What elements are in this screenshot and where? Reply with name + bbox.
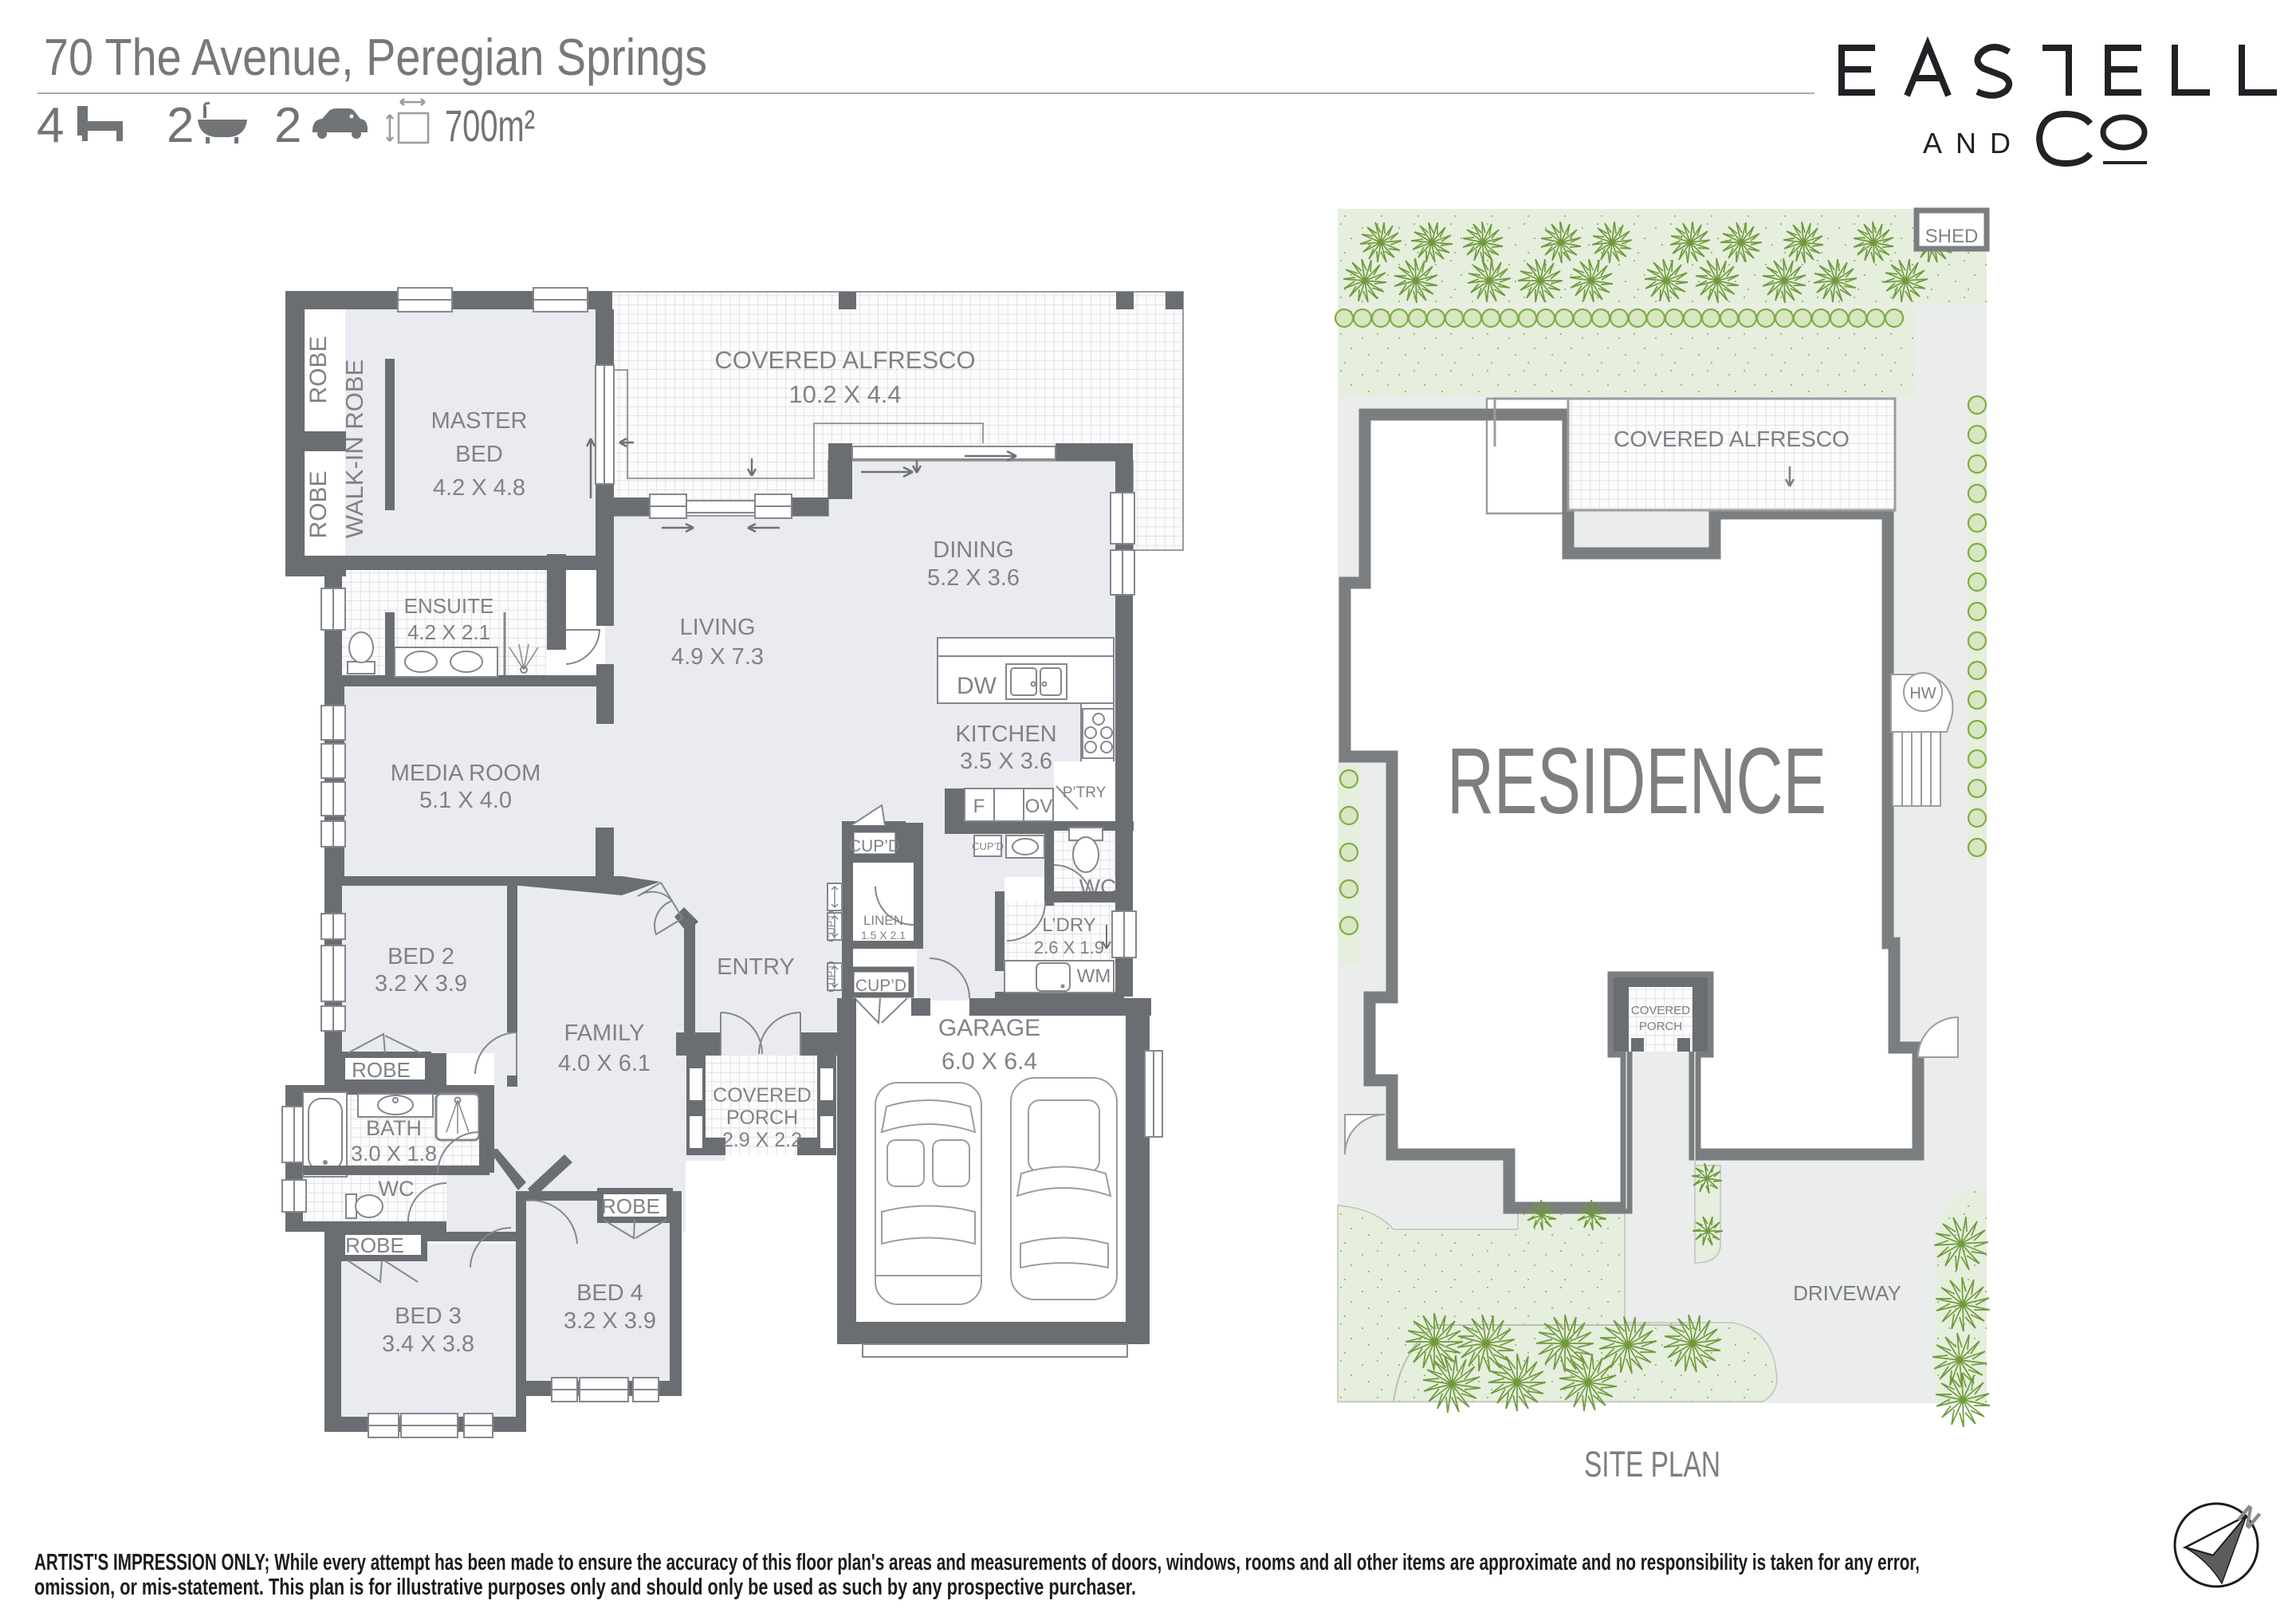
svg-text:4.0 X 6.1: 4.0 X 6.1 [558, 1051, 651, 1076]
svg-text:2: 2 [167, 98, 194, 153]
svg-text:5.2 X 3.6: 5.2 X 3.6 [927, 565, 1020, 591]
svg-text:4.9 X 7.3: 4.9 X 7.3 [671, 644, 764, 670]
svg-text:COVERED ALFRESCO: COVERED ALFRESCO [714, 346, 975, 374]
svg-text:5.1 X 4.0: 5.1 X 4.0 [419, 788, 512, 813]
svg-text:CUP’D: CUP’D [855, 977, 906, 995]
svg-text:CUP’D: CUP’D [825, 961, 837, 993]
svg-text:BED 3: BED 3 [395, 1304, 462, 1329]
svg-text:CUP’D: CUP’D [972, 840, 1004, 852]
svg-text:FAMILY: FAMILY [564, 1020, 645, 1046]
svg-text:HW: HW [1909, 685, 1936, 702]
svg-text:6.0 X 6.4: 6.0 X 6.4 [942, 1048, 1037, 1075]
svg-text:3.2 X 3.9: 3.2 X 3.9 [375, 971, 467, 997]
svg-text:1.5 X 2.1: 1.5 X 2.1 [861, 929, 906, 942]
svg-text:WM: WM [1077, 965, 1111, 987]
svg-text:3.2 X 3.9: 3.2 X 3.9 [564, 1308, 656, 1334]
svg-text:BED 4: BED 4 [576, 1280, 643, 1306]
svg-text:ARTIST'S IMPRESSION ONLY; Whil: ARTIST'S IMPRESSION ONLY; While every at… [34, 1550, 1920, 1575]
svg-text:2.9 X 2.2: 2.9 X 2.2 [722, 1129, 802, 1151]
svg-text:ROBE: ROBE [345, 1233, 404, 1257]
svg-text:SHED: SHED [1925, 226, 1979, 247]
svg-text:RESIDENCE: RESIDENCE [1447, 729, 1826, 834]
svg-text:2.6 X 1.9: 2.6 X 1.9 [1034, 938, 1104, 957]
svg-text:SITE PLAN: SITE PLAN [1584, 1444, 1720, 1484]
svg-text:L’DRY: L’DRY [1042, 914, 1096, 936]
svg-text:DRIVEWAY: DRIVEWAY [1793, 1281, 1901, 1305]
svg-text:BED 2: BED 2 [387, 944, 454, 969]
svg-text:DINING: DINING [933, 537, 1014, 563]
svg-text:BATH: BATH [366, 1116, 422, 1140]
svg-text:10.2 X 4.4: 10.2 X 4.4 [788, 380, 901, 408]
svg-text:BED: BED [455, 442, 503, 467]
svg-text:2: 2 [274, 98, 301, 153]
svg-text:4.2 X 2.1: 4.2 X 2.1 [407, 620, 490, 644]
svg-text:GARAGE: GARAGE [938, 1015, 1040, 1041]
svg-text:COVERED ALFRESCO: COVERED ALFRESCO [1614, 427, 1850, 451]
svg-text:3.4 X 3.8: 3.4 X 3.8 [382, 1331, 474, 1357]
svg-text:WALK-IN ROBE: WALK-IN ROBE [340, 360, 368, 539]
svg-text:AND: AND [1923, 127, 2024, 159]
svg-text:4.2 X 4.8: 4.2 X 4.8 [433, 475, 525, 501]
svg-text:CUP’D: CUP’D [825, 910, 837, 942]
svg-text:3.0 X 1.8: 3.0 X 1.8 [351, 1142, 437, 1166]
svg-text:LIVING: LIVING [679, 615, 755, 640]
svg-text:ROBE: ROBE [352, 1058, 411, 1082]
svg-text:ROBE: ROBE [305, 470, 332, 538]
svg-text:DW: DW [957, 673, 997, 699]
svg-text:MEDIA ROOM: MEDIA ROOM [391, 761, 541, 786]
svg-text:700m²: 700m² [445, 100, 535, 151]
svg-text:CUP’D: CUP’D [849, 837, 900, 855]
svg-text:70 The Avenue, Peregian Spring: 70 The Avenue, Peregian Springs [44, 28, 707, 86]
svg-text:F: F [973, 796, 985, 817]
svg-text:ROBE: ROBE [601, 1194, 660, 1218]
svg-text:PORCH: PORCH [726, 1107, 798, 1129]
svg-text:ENTRY: ENTRY [717, 954, 795, 980]
svg-text:COVERED: COVERED [1631, 1004, 1690, 1017]
svg-text:COVERED: COVERED [713, 1084, 812, 1107]
svg-text:PORCH: PORCH [1639, 1020, 1682, 1033]
svg-text:4: 4 [37, 98, 64, 153]
svg-text:omission, or mis-statement. Th: omission, or mis-statement. This plan is… [34, 1575, 1136, 1600]
svg-text:KITCHEN: KITCHEN [955, 722, 1056, 747]
svg-text:3.5 X 3.6: 3.5 X 3.6 [960, 749, 1052, 774]
svg-text:MASTER: MASTER [431, 408, 528, 434]
svg-text:OV: OV [1025, 796, 1053, 817]
svg-text:ENSUITE: ENSUITE [404, 594, 494, 618]
svg-text:WC: WC [379, 1177, 415, 1201]
svg-text:ROBE: ROBE [305, 336, 332, 403]
